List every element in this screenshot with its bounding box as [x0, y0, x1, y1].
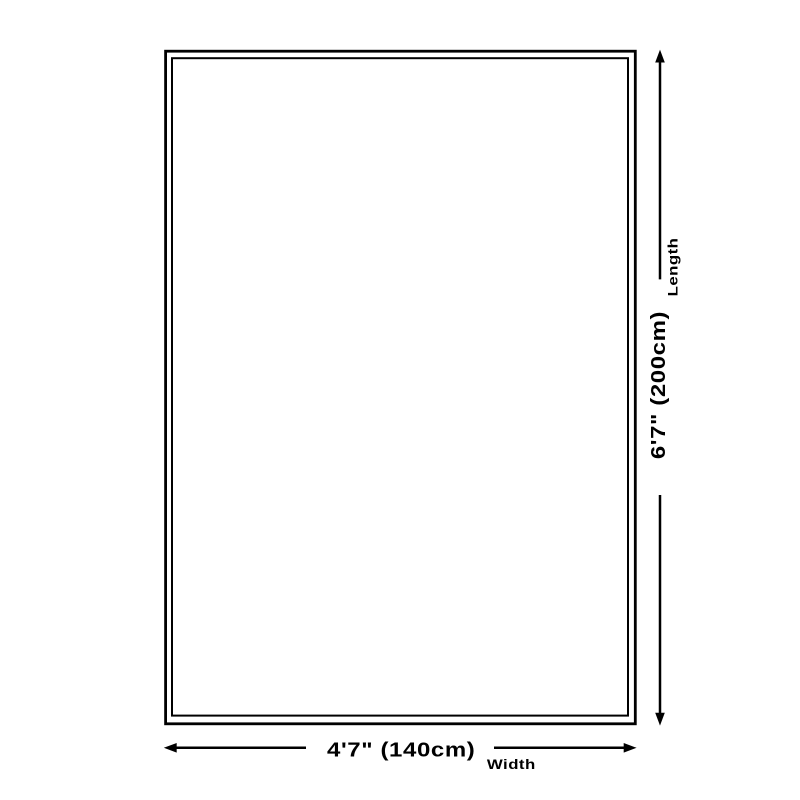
svg-text:Length: Length: [666, 238, 681, 297]
svg-text:6'7" (200cm): 6'7" (200cm): [647, 311, 670, 459]
svg-text:Width: Width: [487, 757, 536, 772]
svg-text:4'7" (140cm): 4'7" (140cm): [327, 738, 475, 761]
